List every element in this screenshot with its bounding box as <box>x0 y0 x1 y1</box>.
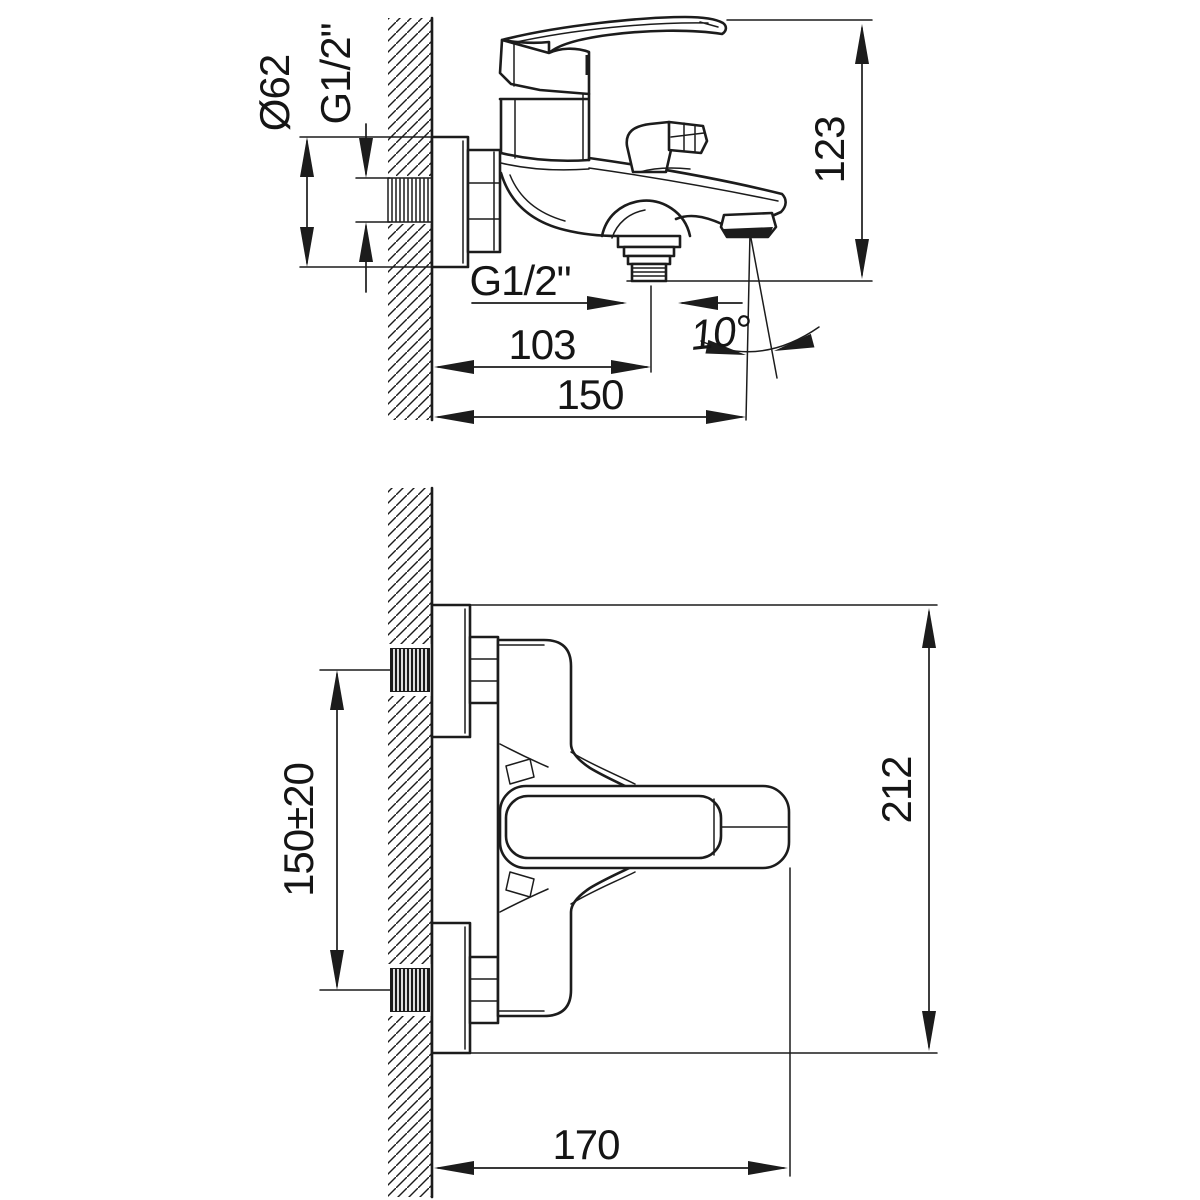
dim-spout-reach: 150 <box>434 371 746 424</box>
shower-outlet <box>602 201 690 281</box>
hex-nut-bottom <box>470 957 498 1023</box>
spray-angled-line <box>750 233 777 378</box>
wall-hatch-bottom <box>388 488 432 1197</box>
handle-front-lever <box>506 796 721 858</box>
dim-overall-height-side-label: 123 <box>806 116 853 183</box>
faucet-front-body <box>498 640 789 1016</box>
dim-spray-angle-label: 10° <box>688 306 753 359</box>
drawing-canvas: Ø62 G1/2" 123 G1/2" <box>0 0 1200 1200</box>
dim-shower-thread-label: G1/2" <box>470 257 571 304</box>
dim-outlet-offset-label: 103 <box>508 321 575 368</box>
diverter-knob <box>627 122 707 172</box>
faucet-side-body <box>500 17 786 281</box>
dim-overall-width-label: 170 <box>552 1121 619 1168</box>
technical-drawing-page: Ø62 G1/2" 123 G1/2" <box>0 0 1200 1200</box>
hex-nut-top <box>470 637 498 703</box>
dim-spray-angle: 10° <box>688 233 819 420</box>
dim-wall-thread: G1/2" <box>312 23 390 292</box>
aerator-tip <box>721 213 776 237</box>
dim-shower-thread: G1/2" <box>470 257 742 310</box>
front-view: 150±20 212 170 <box>275 488 937 1197</box>
hex-nut-side <box>468 150 500 252</box>
dim-plate-diameter-label: Ø62 <box>251 55 298 131</box>
dim-overall-height-front-label: 212 <box>873 756 920 823</box>
dim-inlet-centers-label: 150±20 <box>275 763 322 897</box>
spout-top <box>589 158 786 216</box>
side-view: Ø62 G1/2" 123 G1/2" <box>251 17 872 424</box>
body-underside <box>501 173 618 236</box>
dim-spout-reach-label: 150 <box>556 371 623 418</box>
dim-inlet-centers: 150±20 <box>275 670 390 990</box>
dim-wall-thread-label: G1/2" <box>312 23 359 124</box>
wall-inlet-thread <box>387 176 432 224</box>
